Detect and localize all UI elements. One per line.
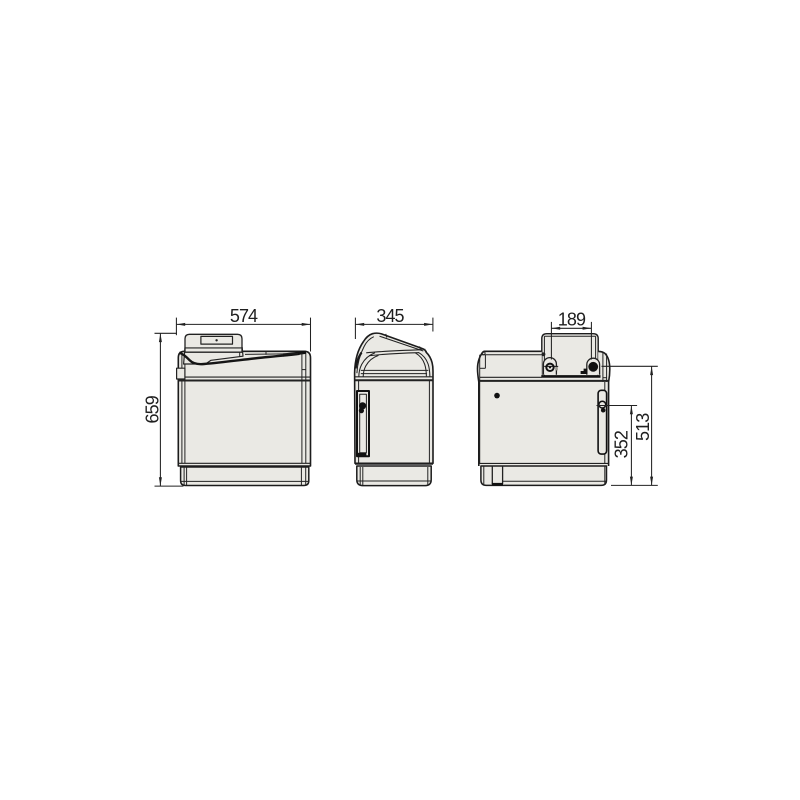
svg-text:574: 574 [230,306,258,326]
svg-text:659: 659 [142,395,162,423]
svg-text:345: 345 [376,306,404,326]
svg-text:513: 513 [633,413,653,441]
svg-text:352: 352 [611,430,631,458]
svg-text:189: 189 [558,310,586,330]
